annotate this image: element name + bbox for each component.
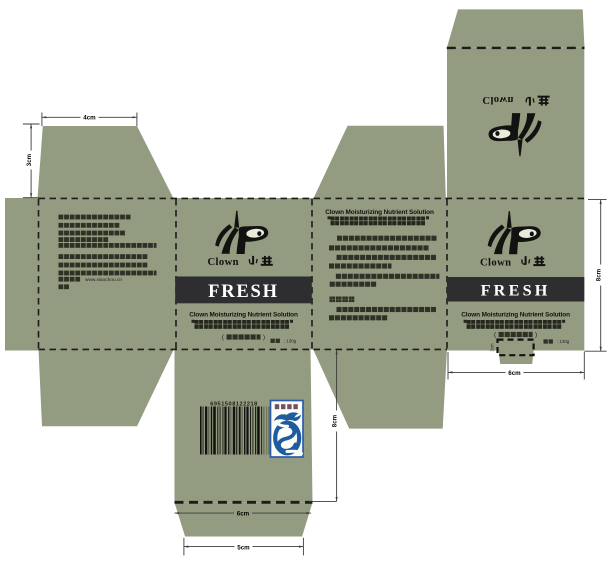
svg-text:Clown Moisturizing Nutrient So: Clown Moisturizing Nutrient Solution [325,209,434,216]
svg-text:8cm: 8cm [596,268,603,281]
svg-text:3cm: 3cm [26,153,33,166]
svg-text:FRESH: FRESH [481,282,551,300]
svg-text:6cm: 6cm [508,370,521,377]
svg-text:: 130g: : 130g [284,339,297,344]
svg-text:www.xiaochou.cn: www.xiaochou.cn [85,277,122,283]
svg-text:8cm: 8cm [332,414,339,427]
svg-text:Clown Moisturizing Nutrient So: Clown Moisturizing Nutrient Solution [461,311,570,318]
svg-text:FRESH: FRESH [208,282,279,302]
svg-text:5cm: 5cm [237,544,250,551]
svg-text:6 9 5 1 5 0 8 1 2 2 2 1 8: 6 9 5 1 5 0 8 1 2 2 2 1 8 [210,402,257,408]
svg-text:Clown Moisturizing Nutrient So: Clown Moisturizing Nutrient Solution [189,311,298,318]
svg-text:): ) [535,332,537,339]
svg-text:: 130g: : 130g [557,339,570,344]
svg-text:4cm: 4cm [83,115,96,122]
svg-text:2cm: 2cm [489,343,494,351]
svg-text:6cm: 6cm [237,511,250,518]
svg-text:Clown: Clown [208,257,239,268]
svg-text:): ) [263,334,265,341]
